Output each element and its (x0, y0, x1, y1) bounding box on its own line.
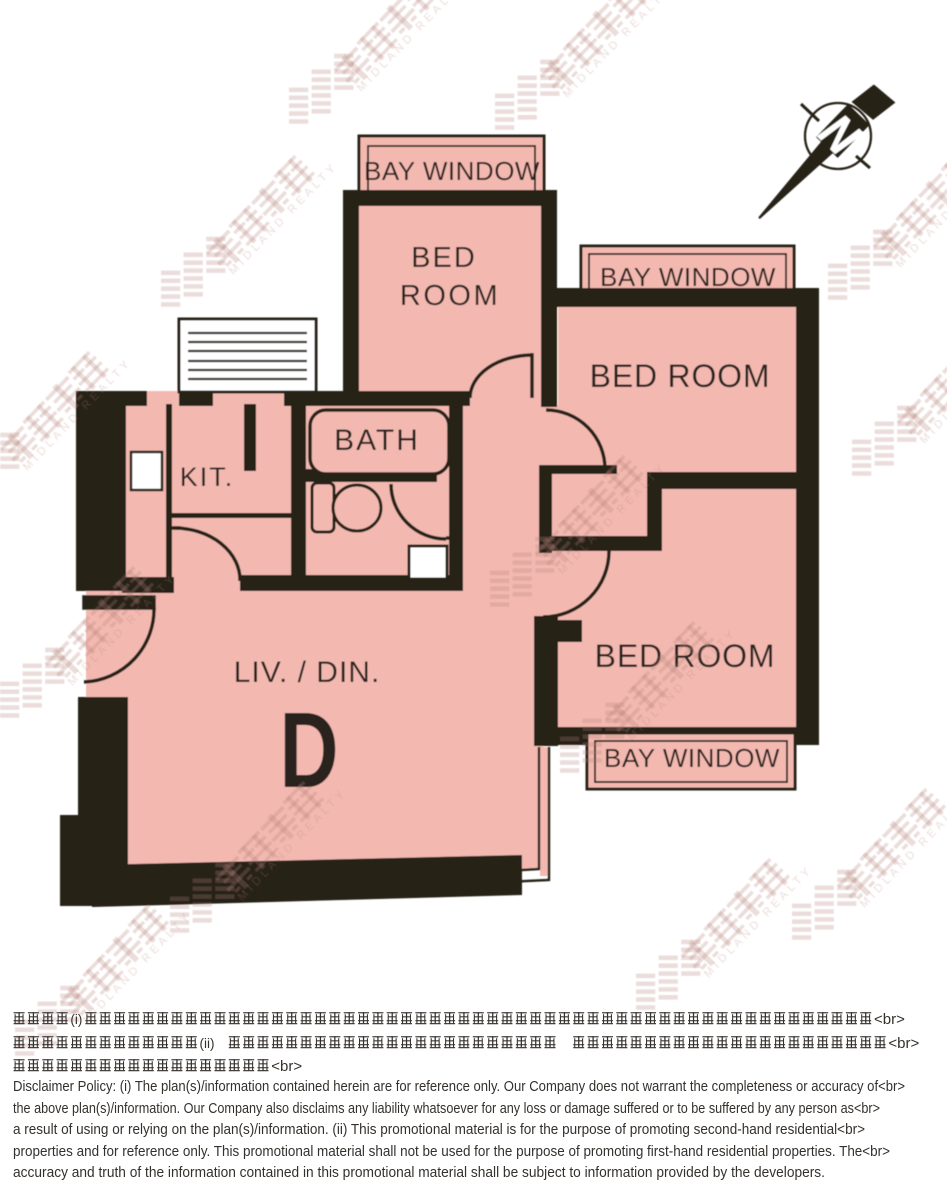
svg-text:a result of using or relying o: a result of using or relying on the plan… (13, 1121, 865, 1138)
svg-text:<br>: <br> (874, 1011, 905, 1028)
svg-text:BAY WINDOW: BAY WINDOW (600, 262, 776, 292)
svg-text:the above plan(s)/information.: the above plan(s)/information. Our Compa… (13, 1100, 880, 1117)
svg-text:(i): (i) (70, 1012, 82, 1027)
svg-text:Disclaimer Policy: (i) The pla: Disclaimer Policy: (i) The plan(s)/infor… (13, 1078, 905, 1095)
svg-text:ROOM: ROOM (400, 280, 500, 312)
svg-text:BED ROOM: BED ROOM (590, 358, 771, 394)
svg-text:accuracy and truth of the info: accuracy and truth of the information co… (13, 1164, 825, 1180)
svg-text:BED: BED (411, 242, 477, 274)
svg-text:<br>: <br> (888, 1035, 919, 1052)
svg-text:KIT.: KIT. (180, 462, 235, 492)
svg-text:LIV. / DIN.: LIV. / DIN. (234, 656, 381, 689)
svg-text:BAY WINDOW: BAY WINDOW (364, 156, 540, 186)
svg-text:<br>: <br> (271, 1058, 302, 1075)
svg-text:(ii): (ii) (200, 1036, 215, 1051)
svg-text:BATH: BATH (334, 424, 420, 457)
svg-text:properties and for reference o: properties and for reference only. This … (13, 1143, 890, 1160)
svg-text:BAY WINDOW: BAY WINDOW (604, 743, 780, 773)
svg-text:D: D (279, 690, 338, 810)
